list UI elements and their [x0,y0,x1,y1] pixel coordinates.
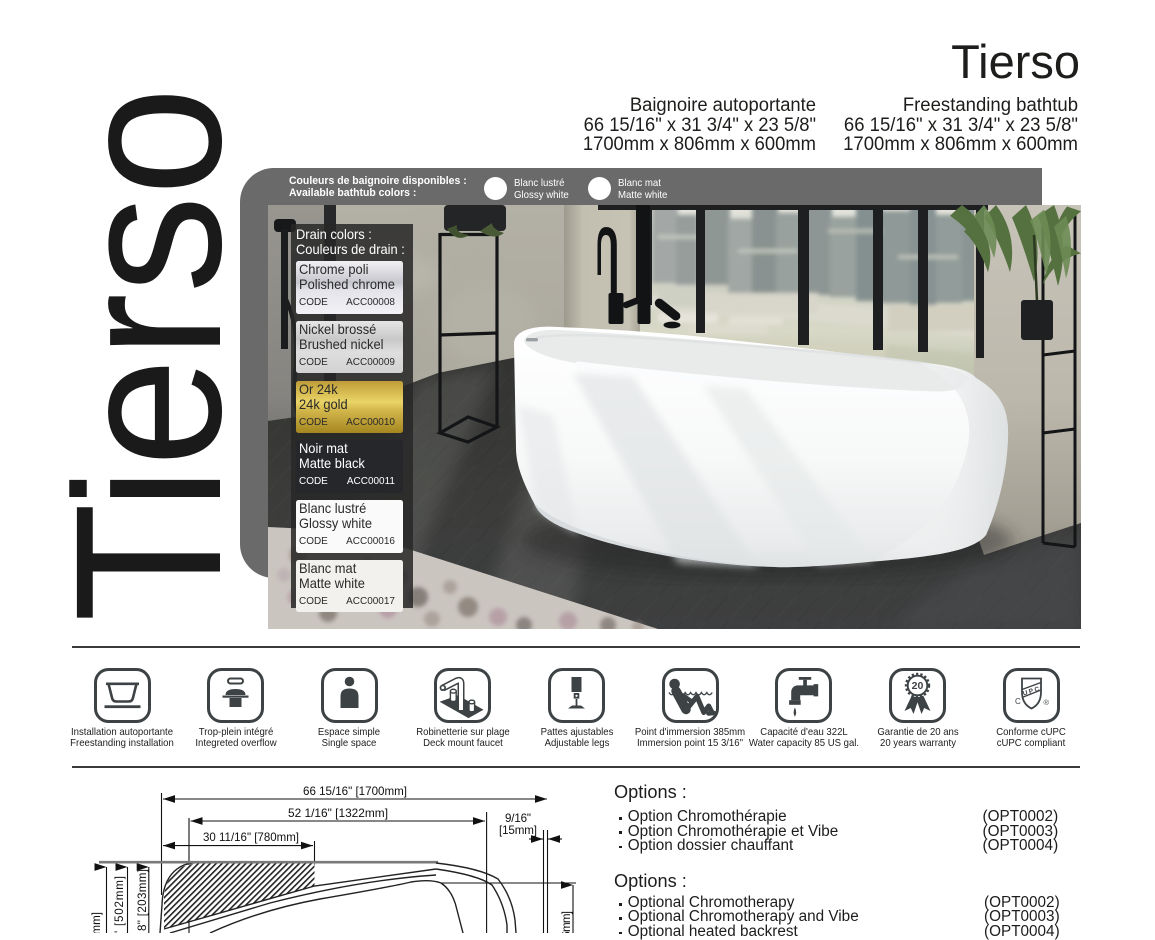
svg-text:66 15/16" [1700mm]: 66 15/16" [1700mm] [303,785,407,798]
svg-text:52 1/16" [1322mm]: 52 1/16" [1322mm] [288,807,388,820]
svg-text:0mm]: 0mm] [90,912,103,933]
svg-text:[15mm]: [15mm] [499,824,537,837]
svg-text:30 11/16" [780mm]: 30 11/16" [780mm] [203,831,299,844]
svg-text:6" [406mm]: 6" [406mm] [560,911,573,933]
svg-text:C: C [1015,697,1021,706]
svg-text:20: 20 [912,680,924,692]
svg-text:®: ® [1043,698,1049,707]
svg-text:Tierso: Tierso [33,87,240,622]
svg-text:" [502mm]: " [502mm] [113,876,126,933]
svg-text:8" [203mm]: 8" [203mm] [136,869,149,931]
